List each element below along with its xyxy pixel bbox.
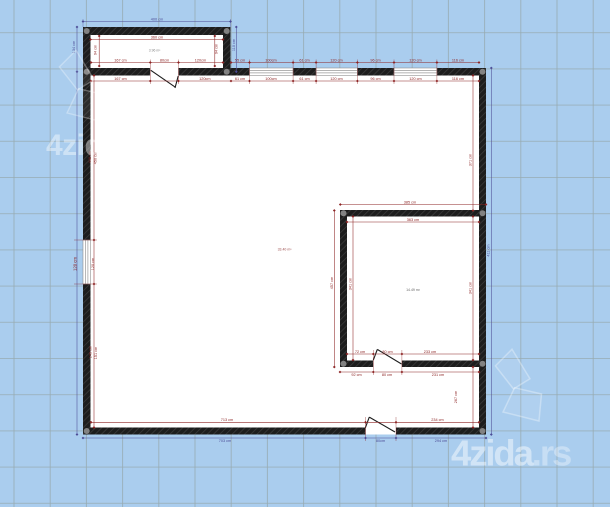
svg-text:94 cm: 94 cm — [94, 45, 98, 55]
svg-text:94 cm: 94 cm — [214, 44, 218, 54]
svg-text:120 cm: 120 cm — [409, 58, 421, 62]
svg-text:411 cm: 411 cm — [487, 244, 491, 256]
svg-text:234 cm: 234 cm — [431, 418, 443, 422]
svg-text:110 cm: 110 cm — [232, 39, 236, 51]
svg-text:120cm: 120cm — [195, 58, 206, 62]
svg-text:267 cm: 267 cm — [454, 391, 458, 403]
svg-text:120 cm: 120 cm — [409, 77, 421, 81]
svg-text:120 cm: 120 cm — [73, 257, 78, 272]
svg-text:167 cm: 167 cm — [114, 58, 126, 62]
svg-text:61 cm: 61 cm — [299, 58, 309, 62]
svg-text:96 cm: 96 cm — [370, 77, 380, 81]
svg-text:116 cm: 116 cm — [452, 77, 464, 81]
svg-text:92 cm: 92 cm — [351, 373, 361, 377]
svg-text:100cm: 100cm — [265, 77, 276, 81]
svg-text:341 cm: 341 cm — [468, 282, 472, 294]
svg-text:33.40 m²: 33.40 m² — [278, 248, 293, 252]
svg-text:80cm: 80cm — [376, 439, 385, 443]
svg-text:61 cm: 61 cm — [299, 77, 309, 81]
svg-text:3.96 m²: 3.96 m² — [149, 49, 161, 53]
svg-text:4zida.rs: 4zida.rs — [46, 129, 154, 162]
svg-text:294 cm: 294 cm — [435, 439, 447, 443]
svg-text:4zida.rs: 4zida.rs — [451, 433, 571, 474]
svg-text:96 cm: 96 cm — [370, 58, 380, 62]
svg-text:61 cm: 61 cm — [235, 77, 245, 81]
svg-text:149 cm: 149 cm — [89, 346, 93, 358]
svg-text:80 cm: 80 cm — [382, 373, 392, 377]
svg-text:100cm: 100cm — [265, 58, 276, 62]
svg-text:385 cm: 385 cm — [404, 200, 416, 204]
svg-text:120 cm: 120 cm — [330, 77, 342, 81]
svg-text:167 cm: 167 cm — [114, 77, 126, 81]
svg-text:72 cm: 72 cm — [355, 350, 365, 354]
svg-text:120cm: 120cm — [199, 77, 210, 81]
svg-text:120 cm: 120 cm — [91, 258, 95, 270]
svg-text:120 cm: 120 cm — [330, 58, 342, 62]
svg-text:371 cm: 371 cm — [468, 154, 472, 166]
svg-text:14.49 m²: 14.49 m² — [406, 288, 421, 292]
svg-text:457 cm: 457 cm — [330, 277, 334, 289]
svg-text:233 cm: 233 cm — [424, 350, 436, 354]
svg-text:703 cm: 703 cm — [219, 439, 231, 443]
svg-text:341 cm: 341 cm — [348, 278, 352, 290]
svg-text:400 cm: 400 cm — [151, 17, 163, 21]
svg-text:360 cm: 360 cm — [151, 35, 163, 39]
svg-text:713 cm: 713 cm — [221, 418, 233, 422]
svg-text:116 cm: 116 cm — [452, 58, 464, 62]
svg-text:80cm: 80cm — [160, 58, 169, 62]
svg-text:80 cm: 80 cm — [382, 350, 392, 354]
svg-text:231 cm: 231 cm — [432, 373, 444, 377]
svg-text:363 cm: 363 cm — [407, 218, 419, 222]
svg-text:151 cm: 151 cm — [94, 347, 98, 359]
